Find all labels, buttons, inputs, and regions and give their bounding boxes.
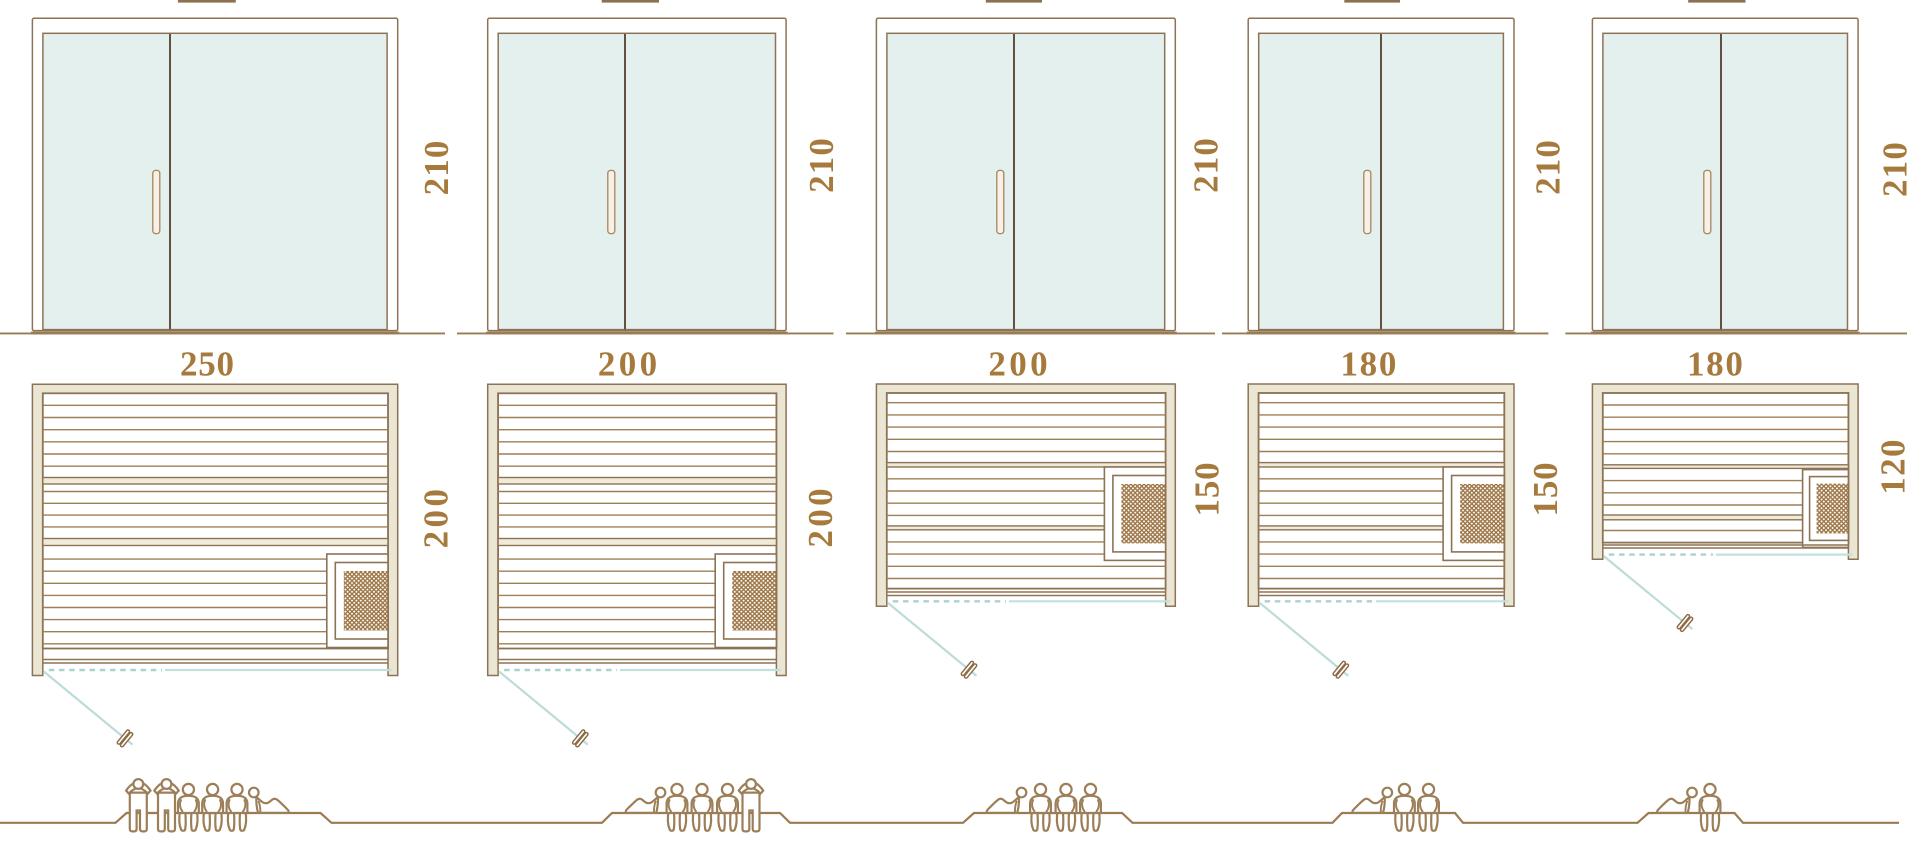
svg-text:150: 150 (1187, 461, 1226, 516)
svg-text:210: 210 (802, 137, 841, 193)
svg-text:200: 200 (801, 485, 840, 548)
svg-text:250: 250 (180, 344, 235, 383)
svg-text:200: 200 (598, 344, 661, 383)
svg-text:210: 210 (1529, 139, 1568, 195)
svg-text:210: 210 (417, 139, 456, 195)
svg-text:200: 200 (416, 486, 455, 549)
svg-text:210: 210 (1187, 137, 1226, 193)
svg-text:120: 120 (1874, 438, 1913, 495)
svg-text:150: 150 (1526, 461, 1565, 516)
svg-text:180: 180 (1687, 344, 1745, 383)
svg-text:210: 210 (1876, 141, 1915, 197)
svg-text:180: 180 (1340, 344, 1398, 383)
svg-text:200: 200 (988, 344, 1051, 383)
